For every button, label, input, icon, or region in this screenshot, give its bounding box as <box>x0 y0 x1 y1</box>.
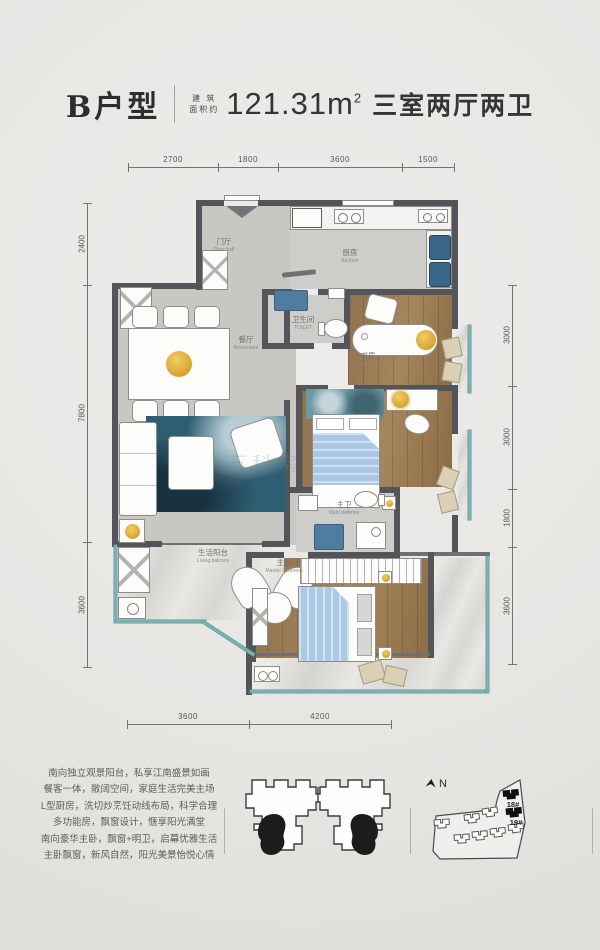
sofa <box>119 422 157 516</box>
sofa-seam <box>120 485 156 486</box>
balcony-sill <box>162 543 262 545</box>
balcony-fixture <box>254 666 280 682</box>
pillow <box>349 418 377 430</box>
showerhead-icon <box>371 527 381 537</box>
dim-value: 4200 <box>310 712 330 721</box>
header: B户型 建 筑 面积约 121.31m2 三室两厅两卫 <box>0 80 600 128</box>
bay-window-glass <box>468 430 471 520</box>
desk-decor <box>416 330 436 350</box>
room-label-kitchen: 厨房Kitchen <box>340 249 360 265</box>
floor-view-balcony-east <box>432 558 486 690</box>
lamp-icon <box>382 574 390 582</box>
duvet-fold <box>333 587 351 605</box>
building-18-label: 18# <box>507 800 520 809</box>
dim-value: 2700 <box>163 155 183 164</box>
area-label-line1: 建 筑 <box>192 94 216 103</box>
dim-value: 7800 <box>77 404 86 422</box>
highlighted-unit <box>258 814 285 855</box>
dimension-line-right: 3000 3000 1800 3600 <box>512 285 513 665</box>
wall <box>258 200 294 206</box>
dining-chair <box>163 306 189 328</box>
dim-value: 3000 <box>502 326 511 344</box>
unit-key-plan <box>236 766 400 864</box>
highlighted-unit <box>351 814 378 855</box>
square-exponent: 2 <box>354 91 362 106</box>
table-centerpiece <box>166 351 192 377</box>
room-label-master-bedroom: 主卧Master bedroom <box>262 559 306 575</box>
mbath-sink <box>298 495 318 511</box>
nightstand <box>378 571 392 584</box>
pillow <box>357 594 372 622</box>
bay-chair <box>441 361 462 384</box>
dim-value: 1800 <box>238 155 258 164</box>
burner-icon <box>351 213 361 223</box>
room-label-living-balcony: 生活阳台Living balcony <box>194 549 232 565</box>
watermark: 万科房 <box>226 448 304 477</box>
bath-sink <box>328 288 345 299</box>
kitchen-appliance <box>429 235 451 260</box>
pot-icon <box>258 671 268 681</box>
wall <box>452 389 458 434</box>
dining-chair <box>132 306 158 328</box>
mbath-toilet-tank <box>378 494 385 506</box>
knob-icon <box>423 213 432 222</box>
side-table <box>119 519 145 543</box>
floorplan-page: B户型 建 筑 面积约 121.31m2 三室两厅两卫 <box>0 0 600 950</box>
north-arrow-icon <box>426 778 437 787</box>
room-label-study: 书房Study <box>360 352 375 368</box>
washer-drum-icon <box>127 603 139 615</box>
room-label-master-bath: 主卫Main defense <box>326 501 362 517</box>
description-line: L型厨房，洗切炒烹饪动线布局，科学合理 <box>28 799 230 815</box>
description-line: 主卧飘窗，新风自然，阳光美景怡悦心情 <box>28 848 230 864</box>
pillow <box>357 628 372 656</box>
dimension-line-bottom: 3600 4200 <box>127 724 392 725</box>
lamp-icon <box>382 650 390 658</box>
dim-value: 3000 <box>502 428 511 446</box>
shoe-cabinet <box>202 250 228 290</box>
dimension-line-top: 2700 1800 3600 1500 <box>128 167 455 168</box>
duvet-fold <box>363 433 379 449</box>
room-label-door-hall: 门厅Door hall <box>212 238 236 254</box>
site-plan: N 18# 19# <box>418 758 596 874</box>
layout-description: 三室两厅两卫 <box>372 86 534 122</box>
dim-value: 1800 <box>502 509 511 527</box>
vanity-mirror <box>392 391 409 408</box>
coffee-table <box>168 436 214 490</box>
marketing-description: 南向独立观景阳台，私享江南盛景如画 餐客一体，敞阔空间，家庭生活完美主场 L型厨… <box>28 766 230 864</box>
description-line: 多功能房，飘窗设计，惬享阳光满堂 <box>28 815 230 831</box>
sofa-seam <box>120 453 156 454</box>
balcony-glass <box>114 620 206 623</box>
wall <box>262 289 268 349</box>
dim-value: 3600 <box>77 596 86 614</box>
kitchen-fixture <box>418 209 448 223</box>
dim-value: 2400 <box>77 235 86 253</box>
wardrobe <box>300 558 422 584</box>
dim-value: 3600 <box>178 712 198 721</box>
area-label: 建 筑 面积约 <box>189 93 219 115</box>
mbath-shower-tray <box>314 524 344 550</box>
bottom-divider <box>410 808 411 854</box>
burner-icon <box>338 213 348 223</box>
kitchen-appliance <box>429 262 451 287</box>
toilet <box>324 319 348 338</box>
room-label-toilet: 卫生间TOILET <box>292 316 315 332</box>
description-line: 餐客一体，敞阔空间，家庭生活完美主场 <box>28 782 230 798</box>
room-label-dining: 餐厅Restaurant <box>231 336 260 352</box>
knob-icon <box>436 213 445 222</box>
entry-door-leaf <box>224 195 260 201</box>
kitchen-sink <box>292 208 322 228</box>
wall <box>112 283 118 545</box>
bottom-divider <box>224 808 225 854</box>
wall <box>262 343 314 349</box>
description-line: 南向独立观景阳台，私享江南盛景如画 <box>28 766 230 782</box>
bay-chair <box>441 336 463 359</box>
dim-value: 1500 <box>418 155 438 164</box>
wall <box>332 343 350 349</box>
area-value: 121.31m2 <box>226 86 362 122</box>
mbath-shower <box>356 522 386 549</box>
pot-icon <box>268 671 278 681</box>
area-label-line2: 面积约 <box>189 105 219 114</box>
dim-value: 3600 <box>330 155 350 164</box>
bed-master <box>298 586 376 662</box>
desk-lamp-icon <box>361 333 368 340</box>
wall <box>428 552 434 658</box>
dining-chair <box>194 306 220 328</box>
shower-tray <box>274 290 308 311</box>
lamp-icon <box>386 500 393 507</box>
entry-door-icon <box>226 206 258 218</box>
wall <box>400 552 490 556</box>
wall <box>262 541 290 547</box>
pillow <box>316 418 344 430</box>
balcony-closet <box>118 547 150 593</box>
master-closet <box>252 588 268 646</box>
dimension-line-left: 2400 7800 3600 <box>87 203 88 668</box>
washer <box>118 597 146 619</box>
balcony-glass <box>486 556 489 693</box>
building-19-label: 19# <box>510 818 523 827</box>
description-line: 南向豪华主卧，飘窗+明卫，启幕优雅生活 <box>28 832 230 848</box>
bay-window-glass <box>468 325 471 393</box>
wall <box>452 515 458 556</box>
balcony-glass <box>250 690 489 693</box>
side-table-plant <box>125 524 140 539</box>
wall <box>452 200 458 295</box>
bay-cushion <box>437 490 459 514</box>
unit-name: B户型 <box>66 82 160 126</box>
wall <box>452 289 458 329</box>
dim-value: 3600 <box>502 597 511 615</box>
header-divider <box>174 85 175 123</box>
cooktop <box>334 209 364 224</box>
balcony-glass <box>114 545 117 623</box>
north-label: N <box>439 778 447 790</box>
